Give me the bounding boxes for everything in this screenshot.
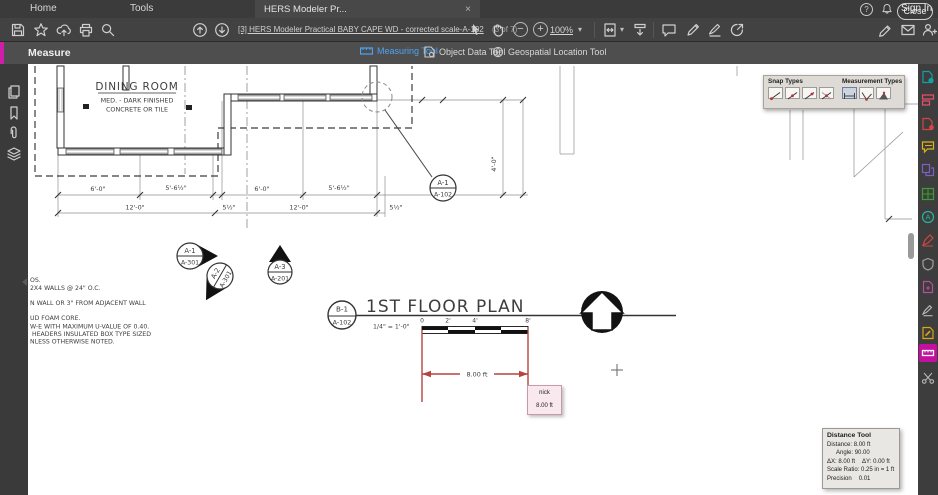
measure-accent-stripe (0, 42, 4, 64)
cloud-upload-icon[interactable] (56, 22, 72, 38)
svg-text:12'-0": 12'-0" (125, 204, 144, 212)
room-label: DINING ROOM MED. - DARK FINISHED CONCRET… (95, 81, 178, 114)
general-notes: OS. 2X4 WALLS @ 24" O.C. N WALL OR 3" FR… (30, 277, 151, 346)
svg-text:6'-0": 6'-0" (254, 185, 269, 193)
svg-text:12'-0": 12'-0" (289, 204, 308, 212)
svg-text:OS.: OS. (30, 277, 41, 284)
layers-icon[interactable] (6, 146, 22, 162)
svg-text:0: 0 (420, 318, 424, 325)
geospatial-tool-icon (492, 46, 504, 58)
redact-pen-icon[interactable] (921, 233, 935, 247)
combine-files-icon[interactable] (921, 163, 935, 177)
tooltip-value: 8.00 ft (528, 403, 561, 409)
organize-pages-icon[interactable] (921, 187, 935, 201)
leader-line (385, 110, 432, 177)
search-icon[interactable] (100, 22, 116, 38)
svg-text:HEADERS INSULATED BOX TYPE SIZ: HEADERS INSULATED BOX TYPE SIZED (32, 331, 151, 338)
comment-icon[interactable] (661, 22, 677, 38)
scan-ocr-icon[interactable]: A (921, 210, 935, 224)
svg-text:5'-6½": 5'-6½" (328, 184, 349, 192)
measuring-tool-icon (360, 46, 373, 56)
svg-text:2X4 WALLS @ 24" O.C.: 2X4 WALLS @ 24" O.C. (30, 284, 101, 292)
scrolling-mode-icon[interactable] (632, 22, 648, 38)
hand-tool-icon[interactable] (490, 22, 506, 38)
toolbar-separator (653, 22, 654, 38)
previous-page-icon[interactable] (192, 22, 208, 38)
svg-text:5'-6½": 5'-6½" (165, 184, 186, 192)
account-person-icon[interactable] (921, 22, 937, 38)
object-data-tool-icon (424, 46, 435, 58)
svg-text:4'-0": 4'-0" (490, 156, 498, 171)
envelope-icon[interactable] (900, 22, 916, 38)
floor-plan-drawing: DINING ROOM MED. - DARK FINISHED CONCRET… (28, 64, 918, 495)
jamb-mark (186, 105, 192, 110)
angle-row: Angle: 90.00 (836, 449, 895, 458)
app-tab-bar: Home Tools HERS Modeler Pr... × ? Sign I… (0, 0, 938, 18)
tools-button[interactable]: Tools (130, 3, 153, 14)
edit-pdf-icon[interactable] (921, 93, 935, 107)
snap-intersection-button[interactable] (819, 87, 834, 99)
document-tab-label: HERS Modeler Pr... (264, 4, 347, 15)
drawing-title-marker: B-1A-102 (328, 301, 356, 329)
star-icon[interactable] (33, 22, 49, 38)
help-icon[interactable]: ? (860, 3, 873, 16)
fill-sign-pen-icon[interactable] (707, 22, 723, 38)
area-tool-button[interactable] (876, 87, 891, 99)
svg-text:A-102: A-102 (434, 192, 452, 199)
tooltip-author: nick (528, 390, 561, 396)
attachments-paperclip-icon[interactable] (6, 125, 22, 141)
fill-sign-tool-icon[interactable] (921, 303, 935, 317)
measurement-types-title: Measurement Types (842, 78, 902, 85)
measure-bar-title: Measure (28, 47, 71, 59)
measure-ruler-icon (921, 346, 935, 360)
svg-text:6'-0": 6'-0" (90, 185, 105, 193)
zoom-in-icon[interactable]: + (533, 22, 548, 37)
jamb-mark (83, 104, 89, 109)
pdf-page[interactable]: DINING ROOM MED. - DARK FINISHED CONCRET… (28, 64, 918, 495)
print-icon[interactable] (78, 22, 94, 38)
vertical-scrollbar[interactable] (908, 233, 914, 259)
precision-row: Precision0.01 (827, 475, 895, 484)
geospatial-tool-label: Geospatial Location Tool (508, 47, 606, 57)
prepare-form-icon[interactable] (921, 326, 935, 340)
svg-text:A-3: A-3 (274, 263, 285, 271)
distance-tool-button[interactable] (842, 87, 857, 99)
pdf-standards-icon[interactable] (921, 280, 935, 294)
detail-marker: A-1A-301 (177, 243, 218, 269)
page-thumbnails-icon[interactable] (6, 84, 22, 100)
main-toolbar: [3] HERS Modeler Practical BABY CAPE WD … (0, 18, 938, 42)
svg-text:B-1: B-1 (336, 305, 348, 314)
distance-measurement-annotation[interactable] (422, 330, 528, 402)
tab-close-icon[interactable]: × (465, 4, 471, 15)
next-page-icon[interactable] (214, 22, 230, 38)
north-arrow-icon (581, 291, 623, 333)
svg-text:A-1: A-1 (437, 179, 448, 187)
distance-tool-panel: Distance Tool Distance: 8.00 ft Angle: 9… (822, 428, 900, 489)
snap-types-title: Snap Types (768, 78, 834, 85)
measurement-value-label: 8.00 ft (467, 371, 488, 379)
protect-shield-icon[interactable] (921, 257, 935, 271)
room-desc-2: CONCRETE OR TILE (106, 106, 168, 114)
delta-row: ΔX: 8.00 ftΔY: 0.00 ft (827, 458, 895, 467)
svg-text:4': 4' (472, 318, 478, 325)
save-icon[interactable] (10, 22, 26, 38)
measurement-tooltip: nick 8.00 ft (527, 385, 562, 415)
snap-types-group: Snap Types (768, 78, 834, 106)
zoom-out-icon[interactable]: − (513, 22, 528, 37)
zoom-caret-icon[interactable]: ▾ (578, 25, 582, 34)
comment-tool-icon[interactable] (921, 140, 935, 154)
drawing-title-block: 1ST FLOOR PLAN 1/4" = 1'-0" 02' 4'8' (356, 297, 676, 334)
page-fit-caret-icon[interactable]: ▾ (620, 25, 624, 34)
document-filename: [3] HERS Modeler Practical BABY CAPE WD … (238, 25, 484, 34)
right-tools-pane: A (918, 64, 938, 495)
graphic-scale-bar (422, 327, 528, 334)
highlight-pencil-icon[interactable] (685, 22, 701, 38)
scale-ratio-row: Scale Ratio: 0.25 in = 1 ft (827, 466, 895, 475)
crosshair-cursor-icon (611, 364, 623, 376)
svg-text:A-1: A-1 (184, 247, 195, 255)
svg-text:N WALL OR 3" FROM ADJACENT WAL: N WALL OR 3" FROM ADJACENT WALL (30, 300, 146, 307)
detail-marker: A-1A-102 (430, 175, 456, 201)
selection-cursor-icon[interactable] (468, 22, 484, 38)
close-measure-button[interactable]: Close (897, 3, 933, 20)
share-icon[interactable] (729, 22, 745, 38)
svg-text:A-201: A-201 (271, 276, 289, 283)
svg-text:NLESS OTHERWISE NOTED.: NLESS OTHERWISE NOTED. (30, 339, 115, 346)
snap-path-button[interactable] (802, 87, 817, 99)
room-desc-1: MED. - DARK FINISHED (101, 97, 174, 105)
dimension-ticks (55, 97, 892, 222)
notifications-bell-icon[interactable] (881, 3, 893, 15)
geospatial-tool-button[interactable]: Geospatial Location Tool (492, 46, 606, 58)
room-name: DINING ROOM (95, 81, 178, 93)
zoom-level-field[interactable]: 100% (550, 25, 573, 35)
customize-scissors-icon[interactable] (921, 371, 935, 385)
svg-text:5½": 5½" (389, 204, 402, 212)
detail-marker: A-3A-201 (268, 245, 292, 284)
scale-note: 1/4" = 1'-0" (373, 324, 410, 331)
measure-tool-active-button[interactable] (919, 344, 937, 362)
svg-text:W-E WITH MAXIMUM U-VALUE OF 0.: W-E WITH MAXIMUM U-VALUE OF 0.40. (30, 324, 149, 331)
drawing-title: 1ST FLOOR PLAN (366, 297, 524, 317)
svg-text:UD FOAM CORE.: UD FOAM CORE. (30, 315, 81, 322)
detail-marker: A-2A-301 (195, 258, 238, 307)
collapse-pane-arrow-icon[interactable] (22, 278, 27, 286)
home-button[interactable]: Home (30, 3, 57, 14)
snap-types-panel: Snap Types Measurement Types (763, 75, 905, 109)
document-tab[interactable]: HERS Modeler Pr... × (255, 0, 480, 18)
toolbar-separator (594, 22, 595, 38)
svg-text:5½": 5½" (222, 204, 235, 212)
svg-text:A-301: A-301 (181, 260, 199, 267)
svg-text:8': 8' (525, 318, 531, 325)
svg-text:A-102: A-102 (333, 319, 352, 327)
perimeter-tool-button[interactable] (859, 87, 874, 99)
page-fit-icon[interactable] (602, 22, 618, 38)
distance-row: Distance: 8.00 ft (827, 441, 895, 450)
export-pdf-icon[interactable] (921, 70, 935, 84)
create-pdf-icon[interactable] (921, 117, 935, 131)
bookmarks-icon[interactable] (6, 105, 22, 121)
svg-text:A: A (925, 213, 930, 222)
measurement-types-group: Measurement Types (842, 78, 902, 106)
distance-panel-title: Distance Tool (827, 432, 895, 441)
snap-midpoint-button[interactable] (785, 87, 800, 99)
sign-pen-icon[interactable] (878, 22, 894, 38)
snap-endpoint-button[interactable] (768, 87, 783, 99)
svg-text:2': 2' (445, 318, 451, 325)
scale-bar-ticks: 02' 4'8' (420, 318, 531, 325)
